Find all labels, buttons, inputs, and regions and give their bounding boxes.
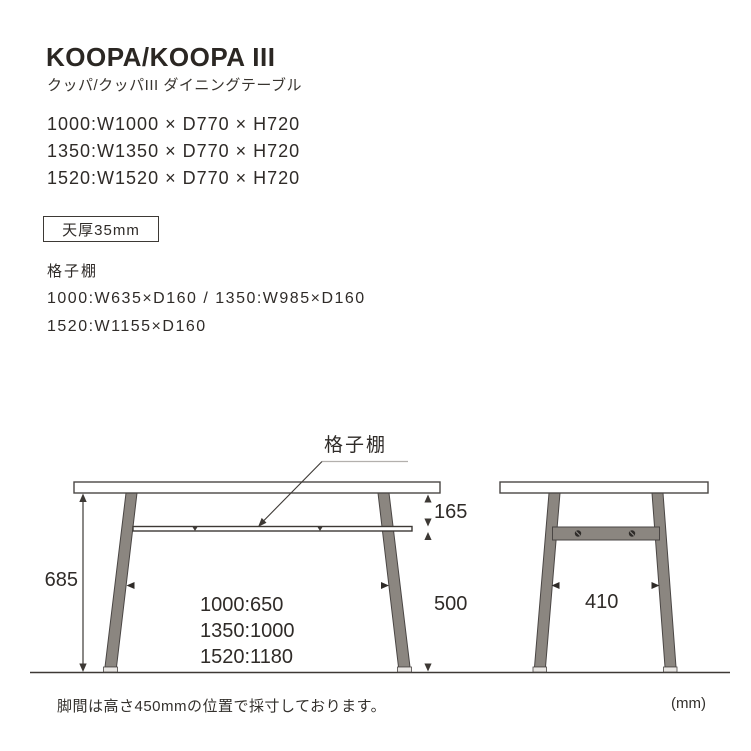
side-beam bbox=[553, 527, 660, 540]
side-left-foot bbox=[533, 667, 547, 672]
gap500-arrow-up bbox=[424, 532, 431, 540]
height-dim-label: 685 bbox=[36, 569, 78, 592]
front-shelf-bar bbox=[133, 527, 412, 532]
front-leg-span-labels: 1000:650 1350:1000 1520:1180 bbox=[200, 592, 295, 670]
front-right-leg bbox=[378, 493, 410, 667]
height-dim-arrow-bottom bbox=[79, 664, 86, 673]
measurement-note: 脚間は高さ450mmの位置で採寸しております。 bbox=[57, 695, 386, 716]
side-tabletop bbox=[500, 482, 708, 493]
front-span-1520: 1520:1180 bbox=[200, 644, 295, 670]
top-to-shelf-dim-label: 165 bbox=[434, 501, 467, 524]
gap500-arrow-down bbox=[424, 664, 431, 672]
gap165-arrow-down bbox=[424, 519, 431, 527]
height-dim-arrow-top bbox=[79, 494, 86, 503]
front-span-arrow-right bbox=[381, 582, 389, 589]
unit-label: (mm) bbox=[671, 695, 706, 712]
front-left-leg bbox=[105, 493, 137, 667]
front-right-foot bbox=[398, 667, 412, 672]
side-leg-span-label: 410 bbox=[585, 591, 618, 614]
front-span-1350: 1350:1000 bbox=[200, 618, 295, 644]
gap165-arrow-up bbox=[424, 495, 431, 503]
side-view bbox=[500, 482, 708, 672]
front-span-arrow-left bbox=[127, 582, 135, 589]
front-tabletop bbox=[74, 482, 440, 493]
spec-sheet: KOOPA/KOOPA III クッパ/クッパIII ダイニングテーブル 100… bbox=[0, 0, 751, 751]
front-left-foot bbox=[104, 667, 118, 672]
side-right-foot bbox=[664, 667, 678, 672]
shelf-to-floor-dim-label: 500 bbox=[434, 593, 467, 616]
side-left-leg bbox=[535, 493, 561, 667]
side-right-leg bbox=[652, 493, 676, 667]
table-drawing bbox=[0, 0, 751, 751]
front-span-1000: 1000:650 bbox=[200, 592, 295, 618]
shelf-callout-label: 格子棚 bbox=[324, 430, 387, 457]
